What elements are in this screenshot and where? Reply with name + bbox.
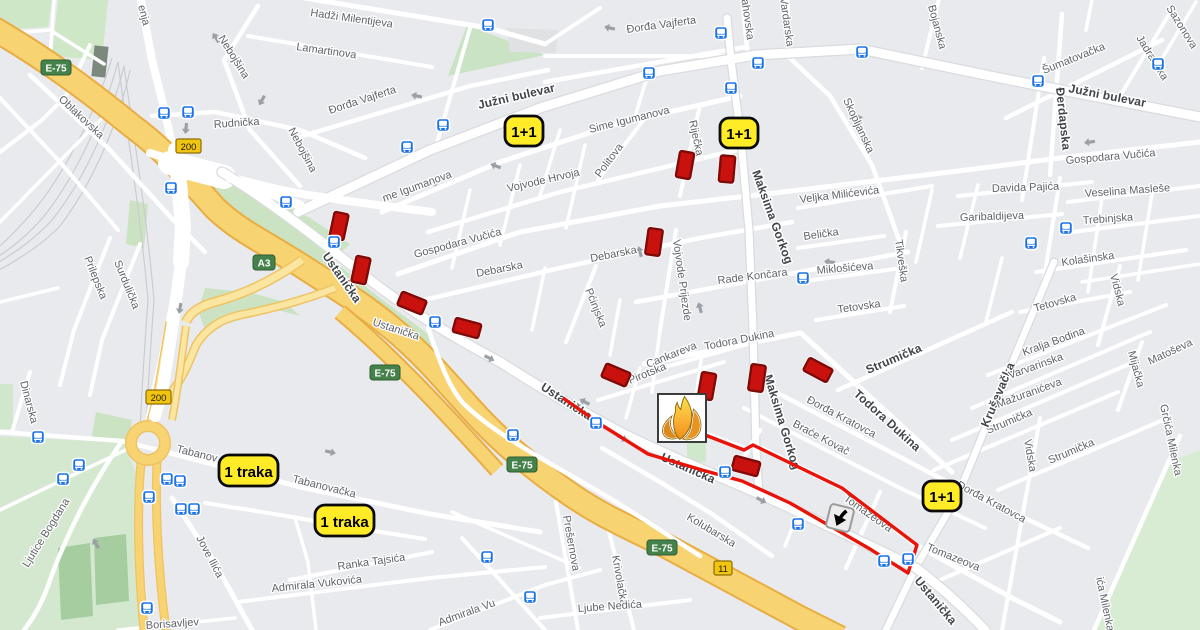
svg-text:1+1: 1+1 (726, 126, 751, 143)
svg-text:1 traka: 1 traka (320, 514, 369, 531)
svg-text:E-75: E-75 (511, 461, 533, 472)
svg-text:E-75: E-75 (651, 544, 673, 555)
svg-text:A3: A3 (258, 259, 271, 270)
svg-text:11: 11 (718, 564, 728, 575)
svg-text:200: 200 (151, 393, 167, 404)
svg-text:E-75: E-75 (374, 369, 396, 380)
svg-text:E-75: E-75 (45, 64, 67, 75)
svg-text:1 traka: 1 traka (224, 464, 273, 481)
svg-text:Davida Pajića: Davida Pajića (992, 181, 1061, 195)
svg-text:Garibaldijeva: Garibaldijeva (960, 210, 1025, 224)
svg-text:1+1: 1+1 (929, 489, 954, 506)
svg-text:1+1: 1+1 (511, 124, 536, 141)
svg-text:200: 200 (181, 142, 197, 153)
